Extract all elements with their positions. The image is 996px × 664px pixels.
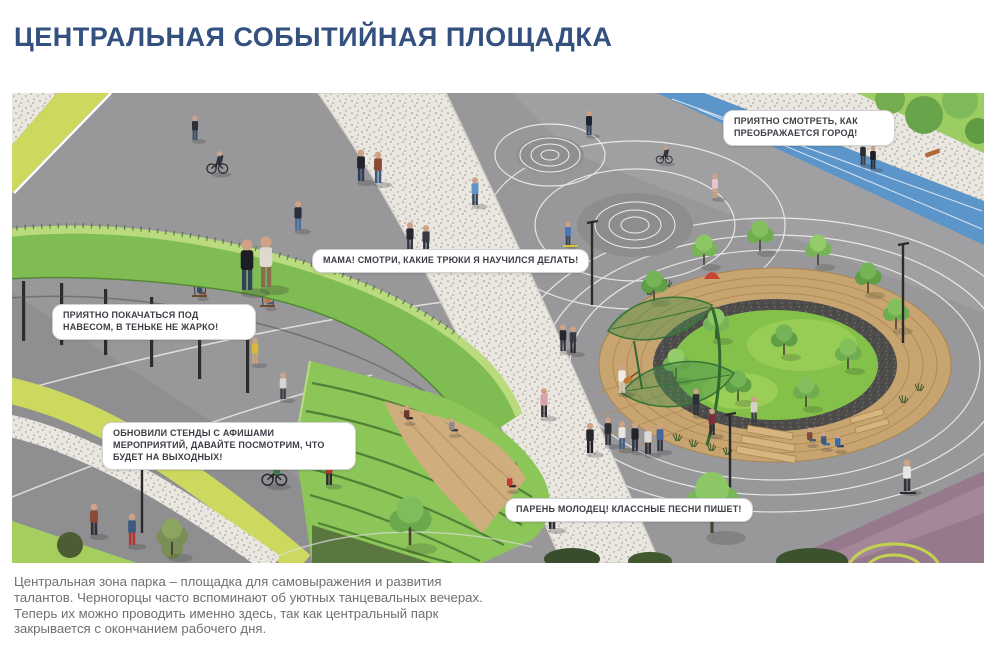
park-visualization: Приятно смотреть, как преображается горо… [12, 93, 984, 563]
callout-tricks: Мама! Смотри, какие трюки я научился дел… [312, 249, 589, 273]
callout-posters: Обновили стенды с афишами мероприятий, д… [102, 422, 356, 470]
callout-watch-city: Приятно смотреть, как преображается горо… [723, 110, 895, 146]
callout-songs: Парень молодец! Классные песни пишет! [505, 498, 753, 522]
caption-text: Центральная зона парка – площадка для са… [14, 574, 501, 637]
callout-swing: Приятно покачаться под навесом, в теньке… [52, 304, 256, 340]
page-title: ЦЕНТРАЛЬНАЯ СОБЫТИЙНАЯ ПЛОЩАДКА [14, 22, 612, 53]
presentation-slide: ЦЕНТРАЛЬНАЯ СОБЫТИЙНАЯ ПЛОЩАДКА [0, 0, 996, 664]
